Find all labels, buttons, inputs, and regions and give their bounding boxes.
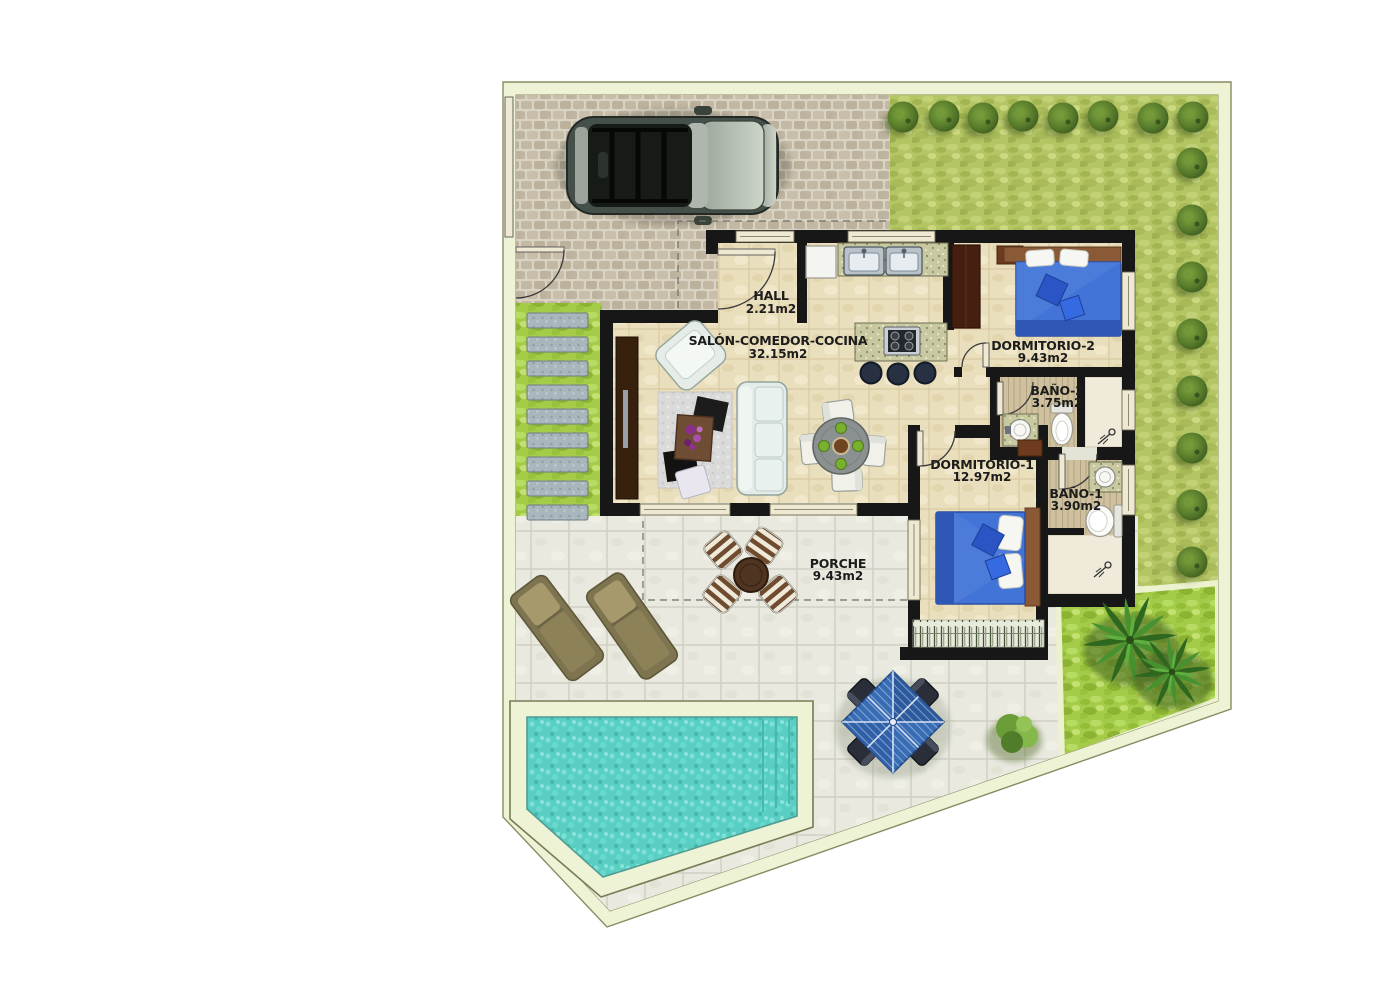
pillow [1059, 249, 1088, 267]
stepping-stones [527, 313, 588, 520]
pillow [1025, 249, 1054, 267]
bedroom2-door-leaf [983, 343, 989, 367]
entrance-door-leaf [718, 249, 775, 255]
bar-stools [861, 363, 936, 385]
fence-gate-strip [505, 97, 513, 237]
tv-screen [623, 390, 628, 448]
label-salon: SALÓN-COMEDOR-COCINA [689, 333, 868, 348]
car [555, 106, 791, 225]
window-shutter-strip [913, 620, 1044, 647]
label-salon-area: 32.15m2 [749, 347, 808, 361]
gate-leaf [516, 247, 564, 252]
label-hall-area: 2.21m2 [746, 302, 796, 316]
label-hall: HALL [753, 288, 789, 303]
label-dormitorio2-area: 9.43m2 [1018, 351, 1068, 365]
fridge [806, 246, 836, 278]
cooktop [884, 327, 920, 355]
label-bano1-area: 3.90m2 [1051, 499, 1101, 513]
double-sink [844, 247, 922, 275]
porch-table [734, 558, 768, 592]
bedroom2-furniture [952, 245, 1121, 336]
label-porche-area: 9.43m2 [813, 569, 863, 583]
bed2-foot-runner [1016, 320, 1121, 336]
floor-plan-page: HALL 2.21m2 SALÓN-COMEDOR-COCINA 32.15m2… [0, 0, 1400, 990]
bedroom1-door-leaf [917, 431, 923, 466]
bedside1 [1018, 440, 1042, 456]
bed1-foot-runner [936, 512, 954, 604]
center-bowl [833, 438, 849, 454]
basin2 [1010, 420, 1031, 441]
label-bano2-area: 3.75m2 [1032, 396, 1082, 410]
basin1 [1095, 467, 1115, 487]
faucet2 [1005, 426, 1011, 434]
label-dormitorio1-area: 12.97m2 [953, 470, 1012, 484]
floor-plan-canvas: HALL 2.21m2 SALÓN-COMEDOR-COCINA 32.15m2… [0, 0, 1400, 990]
bath1-door-leaf [1059, 454, 1065, 489]
bath2-door-leaf [997, 382, 1003, 415]
bed1-headboard [1025, 508, 1040, 606]
toilet2 [1051, 404, 1073, 445]
sofa [737, 382, 787, 495]
